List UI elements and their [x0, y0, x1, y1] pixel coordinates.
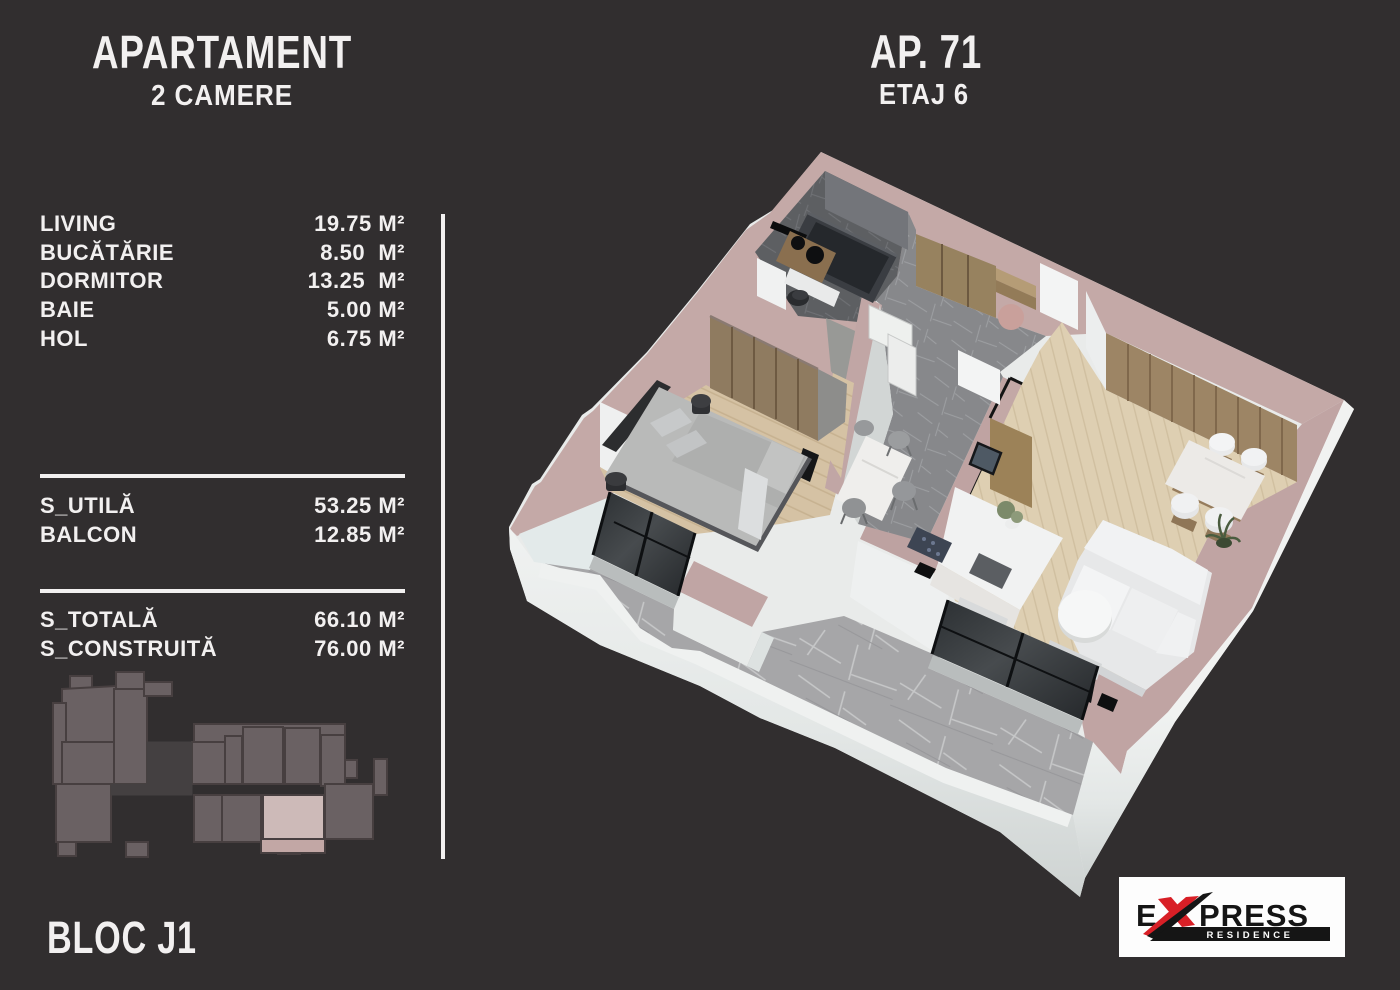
- svg-text:RESIDENCE: RESIDENCE: [1207, 930, 1294, 941]
